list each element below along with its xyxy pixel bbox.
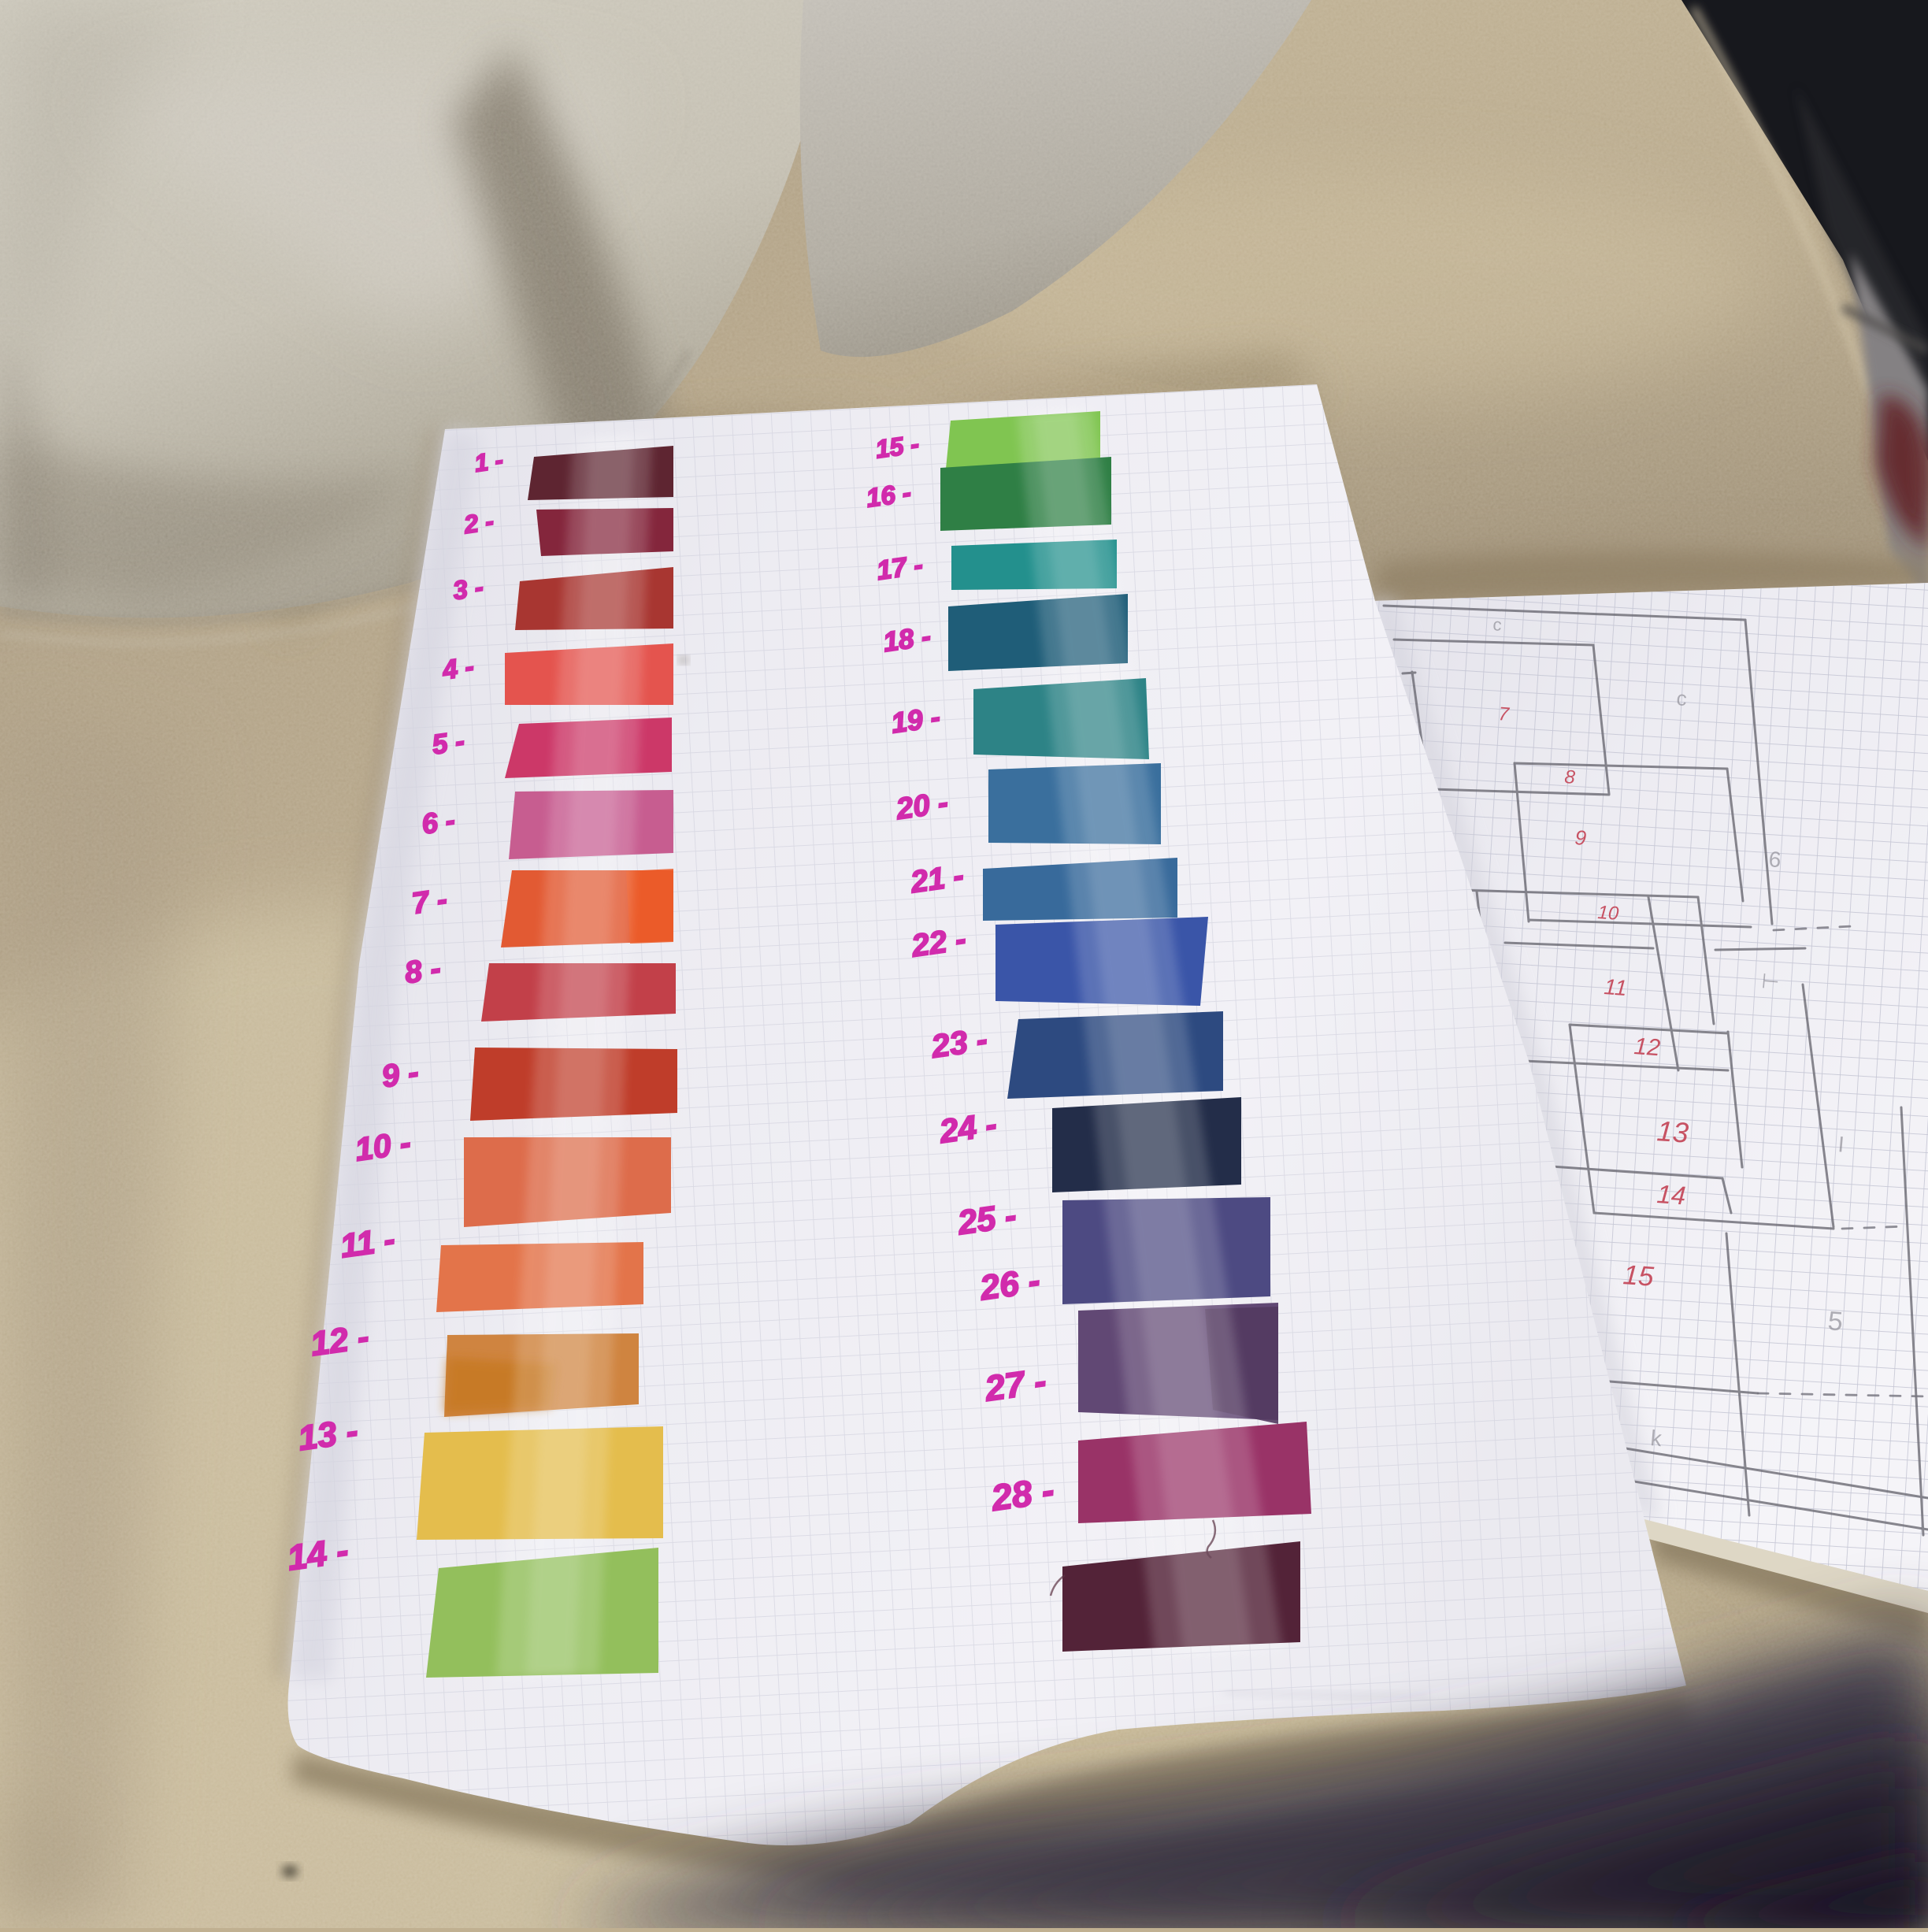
svg-text:15: 15: [1622, 1259, 1655, 1292]
svg-text:10: 10: [1597, 902, 1620, 925]
svg-text:14: 14: [1656, 1179, 1687, 1210]
svg-text:28 -: 28 -: [988, 1469, 1057, 1519]
svg-text:4 -: 4 -: [440, 651, 476, 685]
svg-text:9 -: 9 -: [380, 1055, 421, 1094]
svg-text:9: 9: [1574, 825, 1588, 850]
svg-text:1 -: 1 -: [473, 446, 505, 477]
svg-text:5 -: 5 -: [430, 725, 466, 760]
svg-text:10 -: 10 -: [353, 1124, 413, 1167]
svg-text:17 -: 17 -: [875, 550, 925, 586]
svg-text:11 -: 11 -: [338, 1220, 397, 1264]
svg-text:2 -: 2 -: [462, 506, 495, 539]
svg-text:c: c: [1492, 614, 1503, 635]
svg-text:7 -: 7 -: [410, 883, 449, 921]
svg-text:8: 8: [1564, 766, 1577, 788]
svg-text:13 -: 13 -: [295, 1411, 360, 1458]
svg-text:27 -: 27 -: [982, 1360, 1049, 1408]
svg-text:15 -: 15 -: [873, 429, 921, 463]
svg-text:8 -: 8 -: [402, 951, 443, 990]
svg-text:16 -: 16 -: [865, 477, 913, 513]
svg-text:3 -: 3 -: [451, 572, 485, 605]
svg-text:13: 13: [1655, 1114, 1689, 1149]
svg-text:6 -: 6 -: [420, 803, 457, 840]
svg-text:12: 12: [1633, 1033, 1662, 1061]
svg-text:19 -: 19 -: [889, 700, 942, 739]
svg-text:5: 5: [1826, 1306, 1844, 1337]
svg-text:14 -: 14 -: [285, 1530, 351, 1578]
svg-text:6: 6: [1767, 847, 1782, 872]
svg-text:c: c: [1675, 686, 1688, 710]
svg-text:11: 11: [1604, 974, 1628, 1000]
svg-text:18 -: 18 -: [881, 621, 932, 658]
svg-text:⊢: ⊢: [1760, 969, 1780, 994]
svg-text:12 -: 12 -: [308, 1318, 371, 1363]
